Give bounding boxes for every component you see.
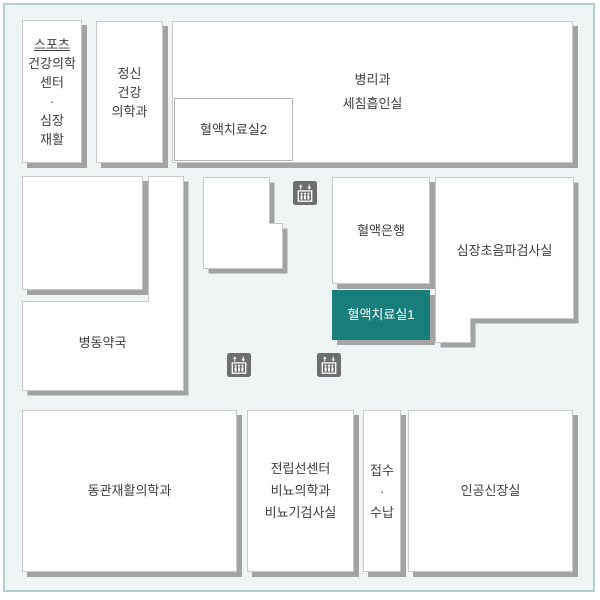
room-label-line: 스포츠 <box>34 35 70 54</box>
room-label-line: 비뇨기검사실 <box>265 502 337 524</box>
room-label-line: 재활 <box>40 130 64 149</box>
room-label-line: 전립선센터 <box>271 458 331 480</box>
room-label-line: 세침흡인실 <box>343 92 403 116</box>
room-cardiac-ultrasound-shape[interactable] <box>435 177 585 352</box>
room-label: 혈액은행 <box>357 220 405 242</box>
room-label-line: 정신 <box>118 64 142 83</box>
room-label-line: 센터 <box>40 73 64 92</box>
room-blood-bank[interactable]: 혈액은행 <box>332 177 430 284</box>
room-dialysis[interactable]: 인공신장실 <box>408 410 573 572</box>
room-label-line: 건강 <box>118 83 142 102</box>
room-label-line: 건강의학 <box>28 54 76 73</box>
room-label: 혈액치료실1 <box>347 304 414 326</box>
elevator-icon <box>227 353 251 377</box>
room-prostate-urology[interactable]: 전립선센터 비뇨의학과 비뇨기검사실 <box>247 410 354 572</box>
room-reception-payment[interactable]: 접수 · 수납 <box>363 410 401 572</box>
room-sports-health-center[interactable]: 스포츠 건강의학 센터 · 심장 재활 <box>22 20 82 163</box>
room-blood-therapy-2[interactable]: 혈액치료실2 <box>174 98 293 161</box>
room-label-line: 의학과 <box>112 102 148 121</box>
room-label: 혈액치료실2 <box>200 122 267 138</box>
room-blood-therapy-1-highlighted[interactable]: 혈액치료실1 <box>332 290 430 340</box>
elevator-icon <box>293 181 317 205</box>
room-east-wing-rehab[interactable]: 동관재활의학과 <box>22 410 237 572</box>
room-unlabeled-2 <box>203 177 293 277</box>
room-label: 인공신장실 <box>461 480 521 502</box>
room-label-line: 수납 <box>370 502 394 523</box>
room-label-line: 병리과 <box>355 68 391 92</box>
room-outline <box>436 178 574 343</box>
elevator-icon <box>317 353 341 377</box>
room-label: 병동약국 <box>22 332 183 351</box>
room-label-line: 접수 <box>370 460 394 481</box>
room-label-line: 비뇨의학과 <box>271 480 331 502</box>
room-label-line: 심장 <box>40 111 64 130</box>
room-unlabeled-1 <box>22 176 143 290</box>
room-psychiatry[interactable]: 정신 건강 의학과 <box>96 21 163 163</box>
room-label: 동관재활의학과 <box>88 480 172 502</box>
room-label-separator: · <box>50 92 54 111</box>
room-label-separator: · <box>380 481 384 502</box>
room-pathology[interactable]: 병리과 세침흡인실 혈액치료실2 <box>172 21 573 163</box>
room-label: 심장초음파검사실 <box>435 240 574 259</box>
